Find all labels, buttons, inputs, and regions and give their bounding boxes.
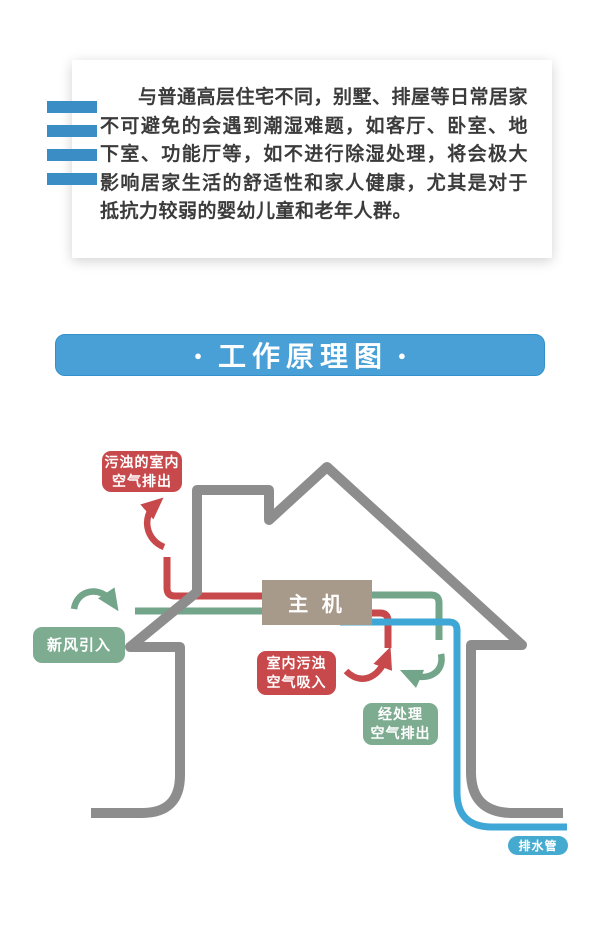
label-indoor-air-intake: 室内污浊 空气吸入 bbox=[257, 651, 336, 695]
label-line: 空气排出 bbox=[112, 472, 172, 491]
label-treated-air-out: 经处理 空气排出 bbox=[363, 703, 438, 745]
label-line: 空气吸入 bbox=[267, 673, 327, 692]
house-outline bbox=[91, 467, 563, 813]
label-polluted-air-exhaust: 污浊的室内 空气排出 bbox=[102, 451, 182, 492]
bullet-icon: ● bbox=[398, 349, 406, 362]
label-line: 经处理 bbox=[378, 705, 423, 724]
label-line: 新风引入 bbox=[47, 636, 111, 655]
treated-air-curve-arrow bbox=[409, 654, 442, 677]
accent-bar bbox=[47, 125, 97, 137]
section-banner: ● 工作原理图 ● bbox=[55, 334, 545, 376]
section-title: 工作原理图 bbox=[212, 335, 388, 375]
label-drain-pipe: 排水管 bbox=[508, 836, 568, 855]
label-fresh-air-intake: 新风引入 bbox=[33, 627, 125, 663]
fresh-air-curve-arrow bbox=[74, 592, 113, 609]
exhaust-up-arrow bbox=[147, 504, 164, 547]
label-line: 空气排出 bbox=[371, 724, 431, 743]
intro-card: 与普通高层住宅不同，别墅、排屋等日常居家不可避免的会遇到潮湿难题，如客厅、卧室、… bbox=[72, 60, 552, 258]
accent-bar bbox=[47, 101, 97, 113]
intro-paragraph: 与普通高层住宅不同，别墅、排屋等日常居家不可避免的会遇到潮湿难题，如客厅、卧室、… bbox=[100, 84, 528, 227]
accent-bar bbox=[47, 173, 97, 185]
bullet-icon: ● bbox=[194, 349, 202, 362]
infographic-page: 与普通高层住宅不同，别墅、排屋等日常居家不可避免的会遇到潮湿难题，如客厅、卧室、… bbox=[0, 0, 600, 930]
accent-bar bbox=[47, 149, 97, 161]
main-unit-box: 主 机 bbox=[262, 580, 372, 625]
label-line: 污浊的室内 bbox=[105, 453, 180, 472]
intake-curve-arrow bbox=[346, 656, 387, 679]
label-line: 室内污浊 bbox=[267, 654, 327, 673]
